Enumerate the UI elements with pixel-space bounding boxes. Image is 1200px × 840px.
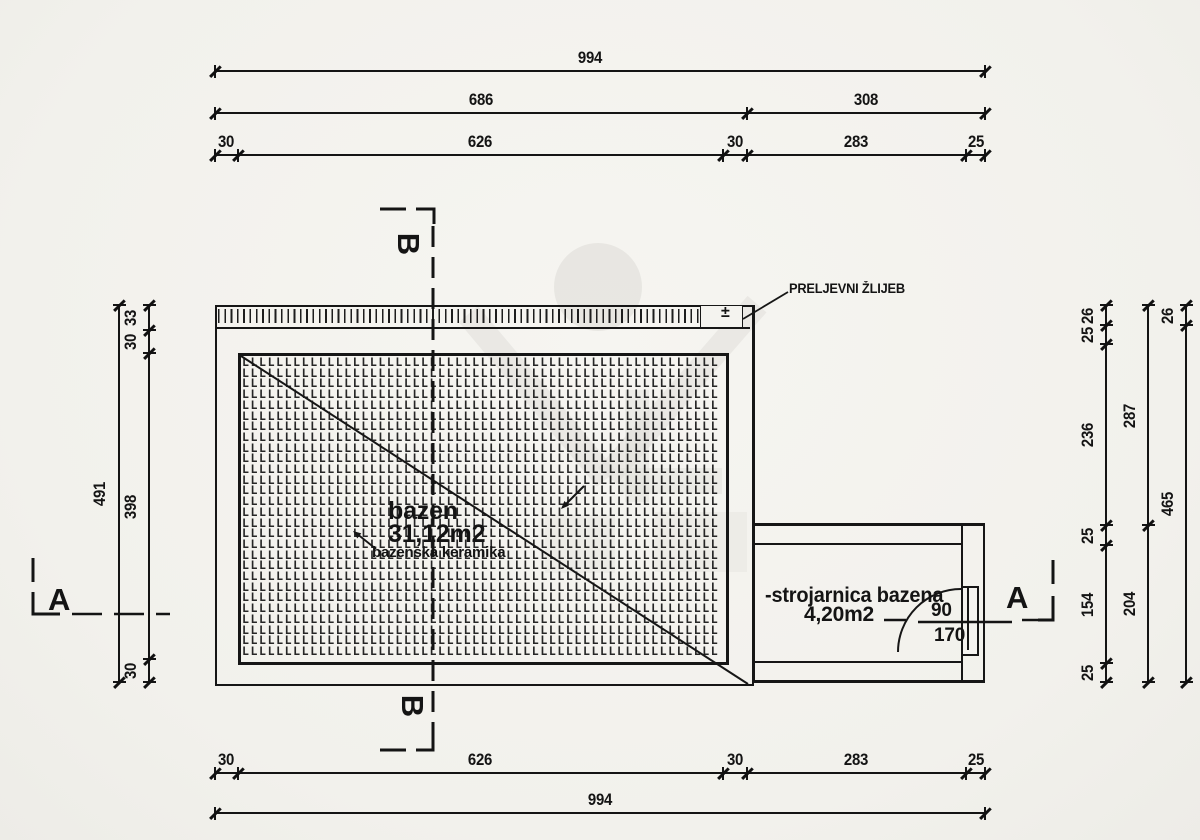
machine-room-bottom-wall-inner [753,661,963,663]
dim-line [1105,305,1107,682]
dim-label: 30 [191,750,261,770]
dim-label: 287 [1120,381,1140,451]
dim-label: 626 [445,132,515,152]
dim-label: 465 [1158,469,1178,539]
dim-line [215,112,985,114]
machine-room-top-wall-inner [753,543,963,545]
dim-line [1185,305,1187,682]
machine-room-area-label: 4,20m2 [804,603,874,627]
dim-label: 25 [1078,300,1098,370]
door-width-label: 90 [931,600,952,622]
overflow-band-bottom-line [215,327,750,329]
machine-room-top-wall-outer [753,523,985,526]
dim-label: 26 [1158,281,1178,351]
overflow-channel-label: PRELJEVNI ŽLIJEB [789,281,905,296]
dim-label: 398 [121,472,141,542]
dim-label: 236 [1078,400,1098,470]
section-b-top-elbow [416,209,434,224]
door-height-label: 170 [934,625,965,647]
section-b-letter-bottom: B [394,695,430,717]
section-a-letter-right: A [1006,580,1028,616]
dim-label: 308 [831,90,901,110]
section-a-letter-left: A [48,582,70,618]
door-leaf-inner-line [967,588,969,650]
dim-label: 994 [555,48,625,68]
dim-label: 491 [90,459,110,529]
blueprint-canvas: LLLLLLLLLLLLLLLLLLLLLLLLLLLLLLLLLLLLLLLL… [0,0,1200,840]
dim-label: 283 [821,132,891,152]
section-b-bottom-elbow [416,736,433,750]
dim-label: 283 [821,750,891,770]
section-a-right-elbow [1038,596,1053,620]
dim-label: 30 [700,132,770,152]
dim-label: 30 [700,750,770,770]
pool-right-wall-inner-line [753,305,755,682]
machine-room-right-wall-outer [983,523,986,682]
dim-line [215,772,985,774]
dim-line [1147,305,1149,682]
dim-label: 25 [1078,638,1098,708]
machine-room-right-wall-inner-upper [961,523,963,588]
dim-line [148,305,150,682]
dim-label: 30 [191,132,261,152]
dim-label: 25 [941,750,1011,770]
level-mark: ± [721,304,730,322]
dim-label: 154 [1078,570,1098,640]
machine-room-right-wall-inner-lower [961,652,963,682]
overflow-channel-band [218,309,741,323]
dim-label: 686 [446,90,516,110]
dim-label: 204 [1120,569,1140,639]
section-b-letter-top: B [390,233,426,255]
dim-label: 30 [121,307,141,377]
dim-label: 25 [1078,501,1098,571]
pool-finish-label: bazenska keramika [372,544,505,561]
pool-basin-border [238,353,729,665]
machine-room-bottom-wall-outer [753,680,985,683]
dim-line [215,812,985,814]
dim-label: 994 [565,790,635,810]
dim-line [215,154,985,156]
dim-label: 30 [121,636,141,706]
dim-line [215,70,985,72]
dim-label: 25 [941,132,1011,152]
dim-line [118,305,120,682]
dim-label: 626 [445,750,515,770]
